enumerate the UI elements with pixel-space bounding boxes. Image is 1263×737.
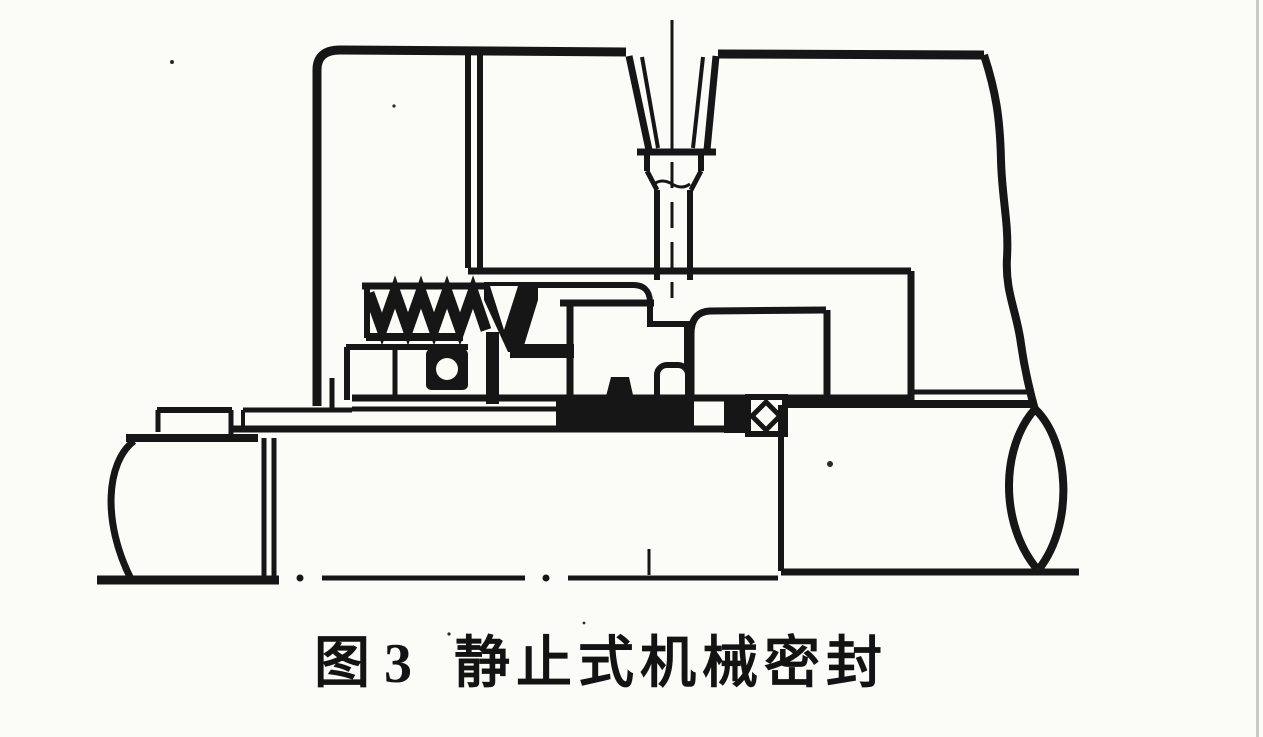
shaft-break-lens-right (1035, 409, 1063, 569)
o-ring-left (436, 358, 458, 380)
shaft-end-cap-arc (111, 441, 134, 579)
figure-caption: 图 3 静止式机械密封 (314, 634, 888, 696)
figure-number: 图 3 (314, 634, 412, 696)
gland-housing (317, 50, 1035, 410)
scan-specks (170, 60, 833, 636)
shaft-left-end (97, 410, 279, 580)
scan-edge-artifact (1256, 0, 1259, 737)
scanned-document-page: 图 3 静止式机械密封 (0, 0, 1263, 737)
shaft-centerline (297, 549, 779, 582)
shaft-right-block (781, 405, 1079, 572)
coil-spring (362, 286, 489, 338)
spring-zigzag (369, 292, 486, 330)
shaft-break-lens-left (1009, 409, 1037, 569)
housing-torn-edge (984, 55, 1035, 410)
gland-stud (629, 20, 716, 298)
figure-title: 静止式机械密封 (454, 634, 888, 696)
mechanical-seal-cross-section-diagram (0, 0, 1263, 737)
stationary-seat (691, 310, 827, 398)
spring-seat-collar (346, 347, 468, 400)
